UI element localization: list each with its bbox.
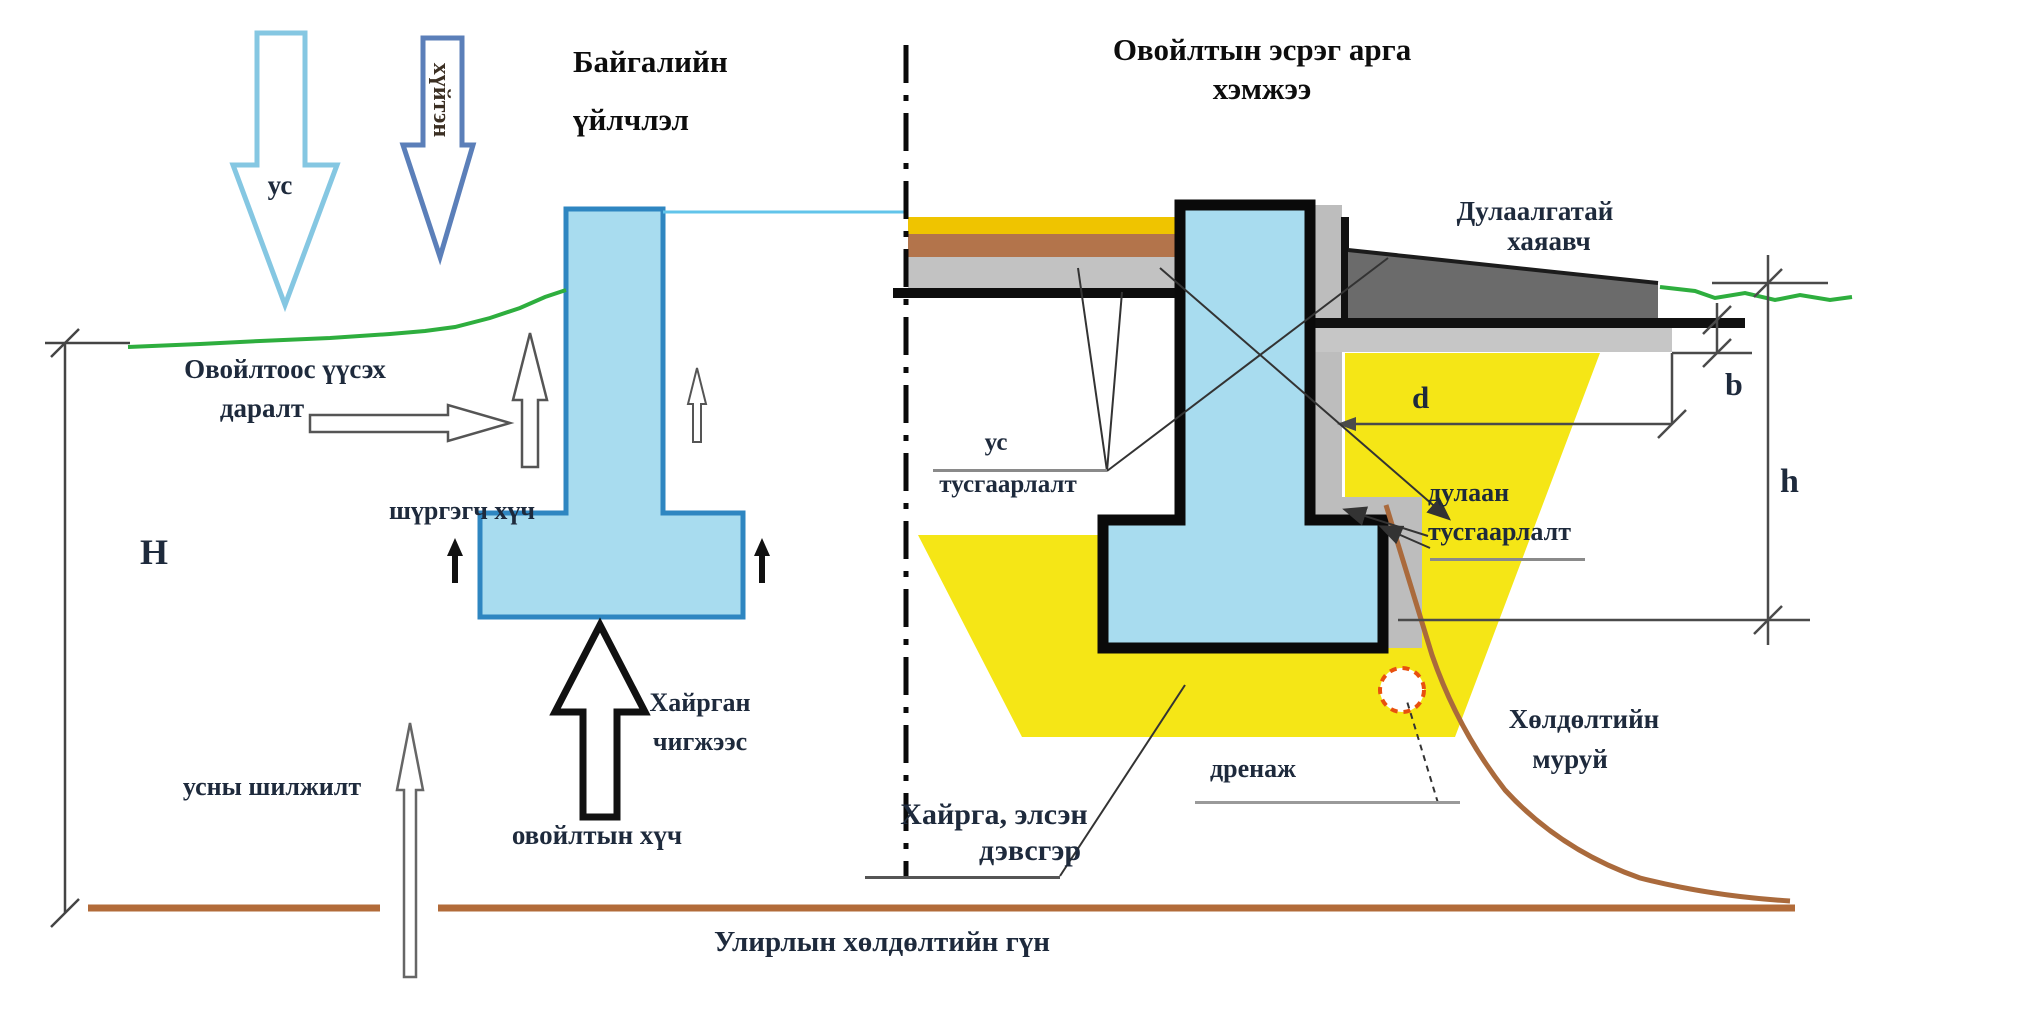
cold-arrow-label: хүйтэн — [429, 63, 453, 137]
insulated-apron — [1348, 250, 1658, 318]
gravel-packing-label-line2: чигжээс — [653, 729, 747, 755]
thermal-insulation-label-line2: тусгаарлалт — [1428, 519, 1571, 545]
floor-layer-top — [908, 217, 1180, 234]
floor-layer-waterproofing — [908, 257, 1180, 288]
waterproofing-label-line2: тусгаарлалт — [939, 472, 1076, 497]
small-uplift-arrow — [688, 368, 706, 442]
frost-depth-caption: Улирлын хөлдөлтийн гүн — [714, 928, 1050, 957]
title-right-line2: хэмжээ — [1213, 73, 1312, 104]
water-movement-arrow — [397, 723, 423, 977]
dimension-H — [45, 329, 130, 927]
heave-force-label: овойлтын хүч — [512, 822, 682, 849]
apron-base-line — [1310, 318, 1745, 328]
drain-pipe — [1380, 668, 1424, 712]
title-left-line2: үйлчлэл — [573, 104, 689, 135]
heave-pressure-label-line1: Овойлтоос үүсэх — [184, 356, 386, 383]
title-left-line1: Байгалийн — [573, 46, 728, 77]
tangential-force-arrow — [513, 333, 547, 467]
insulated-apron-label-line1: Дулаалгатай — [1457, 198, 1614, 225]
title-right-line1: Овойлтын эсрэг арга — [1113, 34, 1411, 65]
water-arrow — [233, 33, 337, 305]
gravel-packing-label-line1: Хайрган — [649, 690, 750, 716]
tangential-force-label: шүргэгч хүч — [389, 498, 535, 524]
dimension-d-label: d — [1412, 382, 1429, 413]
dimension-b-label: b — [1725, 368, 1743, 400]
water-arrow-label: ус — [268, 172, 293, 199]
frost-curve-label-line1: Хөлдөлтийн — [1509, 706, 1659, 733]
bedding-label-line2: дэвсгэр — [979, 836, 1081, 866]
dimension-h-label: h — [1780, 465, 1799, 499]
heave-pressure-arrow — [310, 405, 510, 441]
frost-curve-label-line2: муруй — [1532, 746, 1608, 773]
floor-slab-line — [893, 288, 1186, 298]
drainage-label: дренаж — [1210, 756, 1296, 782]
heave-pressure-label-line2: даралт — [220, 395, 304, 422]
heave-force-arrow — [555, 625, 645, 817]
dimension-H-label: H — [140, 534, 168, 570]
apron-bedding-gray — [1310, 328, 1672, 352]
waterproofing-label-line1: ус — [985, 430, 1008, 455]
floor-layer-middle — [908, 234, 1180, 257]
left-foundation — [480, 209, 743, 617]
water-movement-label: усны шилжилт — [183, 774, 361, 800]
insulated-apron-label-line2: хаяавч — [1507, 228, 1591, 255]
bedding-label-line1: Хайрга, элсэн — [900, 800, 1087, 830]
apron-upstand — [1341, 217, 1349, 321]
tiny-uplift-arrow-left — [447, 538, 463, 583]
tiny-uplift-arrow-right — [754, 538, 770, 583]
thermal-insulation-label-line1: дулаан — [1428, 480, 1509, 506]
frost-heave-diagram: Байгалийн үйлчлэл Овойлтын эсрэг арга хэ… — [0, 0, 2019, 1013]
ground-line-left — [128, 290, 566, 347]
